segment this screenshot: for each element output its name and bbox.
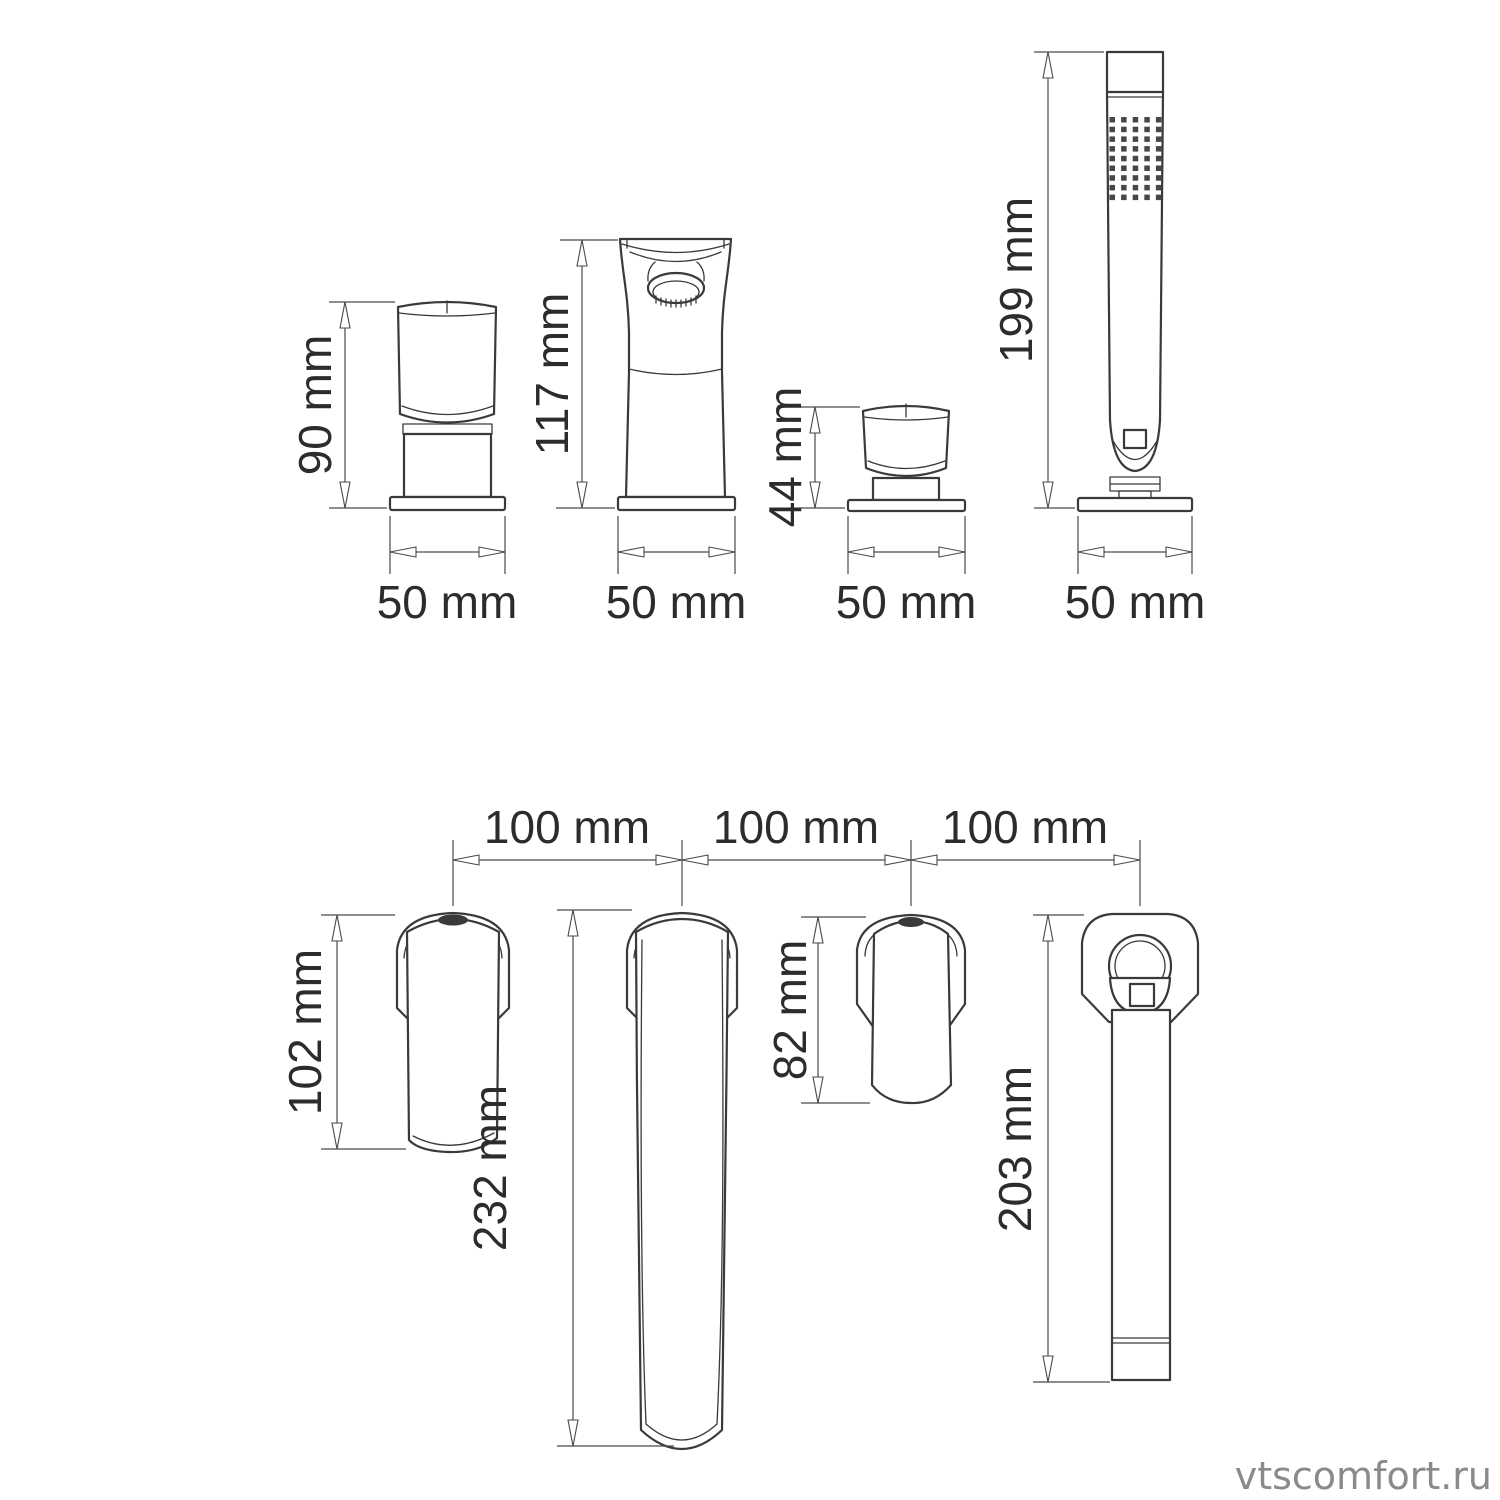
holder-clip [1124, 430, 1146, 448]
base-flange [390, 497, 505, 510]
handshower-height-label: 199 mm [990, 197, 1042, 363]
front-view-spout: 117 mm 50 mm [526, 239, 746, 628]
front-view-hot-handle: 90 mm 50 mm [289, 301, 517, 628]
hot-handle-length-label: 102 mm [279, 949, 331, 1115]
spout-height-label: 117 mm [526, 293, 578, 456]
hot-handle-width-label: 50 mm [377, 576, 518, 628]
cold-handle-length-label: 82 mm [764, 940, 816, 1081]
front-view-handshower: 199 mm 50 mm [990, 52, 1205, 628]
base-flange [848, 500, 965, 511]
watermark: vtscomfort.ru [1235, 1454, 1492, 1498]
shower-head [1107, 52, 1163, 92]
hot-handle-height-label: 90 mm [289, 335, 341, 476]
spacing-label-3: 100 mm [942, 801, 1108, 853]
front-view-cold-handle: 44 mm 50 mm [759, 387, 976, 628]
spacing-label-2: 100 mm [713, 801, 879, 853]
spout-width-label: 50 mm [606, 576, 747, 628]
top-view-cold-handle: 82 mm [764, 915, 965, 1103]
cold-handle-height-label: 44 mm [759, 387, 811, 528]
base-flange [618, 497, 735, 510]
spray-grid [1110, 117, 1162, 200]
handle-indicator [898, 917, 924, 927]
handle-cap [398, 302, 496, 423]
faucet-dimension-drawing: 90 mm 50 mm 117 mm 50 mm [0, 0, 1500, 1500]
spout-top [636, 919, 728, 1449]
hole-spacing-dimension: 100 mm 100 mm 100 mm [453, 801, 1140, 906]
handle-top [872, 921, 951, 1103]
handle-stem [873, 478, 939, 500]
spout-length-label: 232 mm [464, 1085, 516, 1251]
top-view-handshower: 203 mm [989, 914, 1198, 1382]
cold-handle-width-label: 50 mm [836, 576, 977, 628]
spacing-label-1: 100 mm [484, 801, 650, 853]
handle-indicator [438, 915, 468, 926]
handle-neck [403, 424, 492, 434]
base-flange [1078, 498, 1192, 511]
holder-clip [1130, 984, 1154, 1006]
handle-body [404, 434, 491, 497]
handshower-width-label: 50 mm [1065, 576, 1206, 628]
technical-drawing-page: 90 mm 50 mm 117 mm 50 mm [0, 0, 1500, 1500]
shower-handle-top [1112, 1010, 1170, 1380]
handshower-length-label: 203 mm [989, 1066, 1041, 1232]
